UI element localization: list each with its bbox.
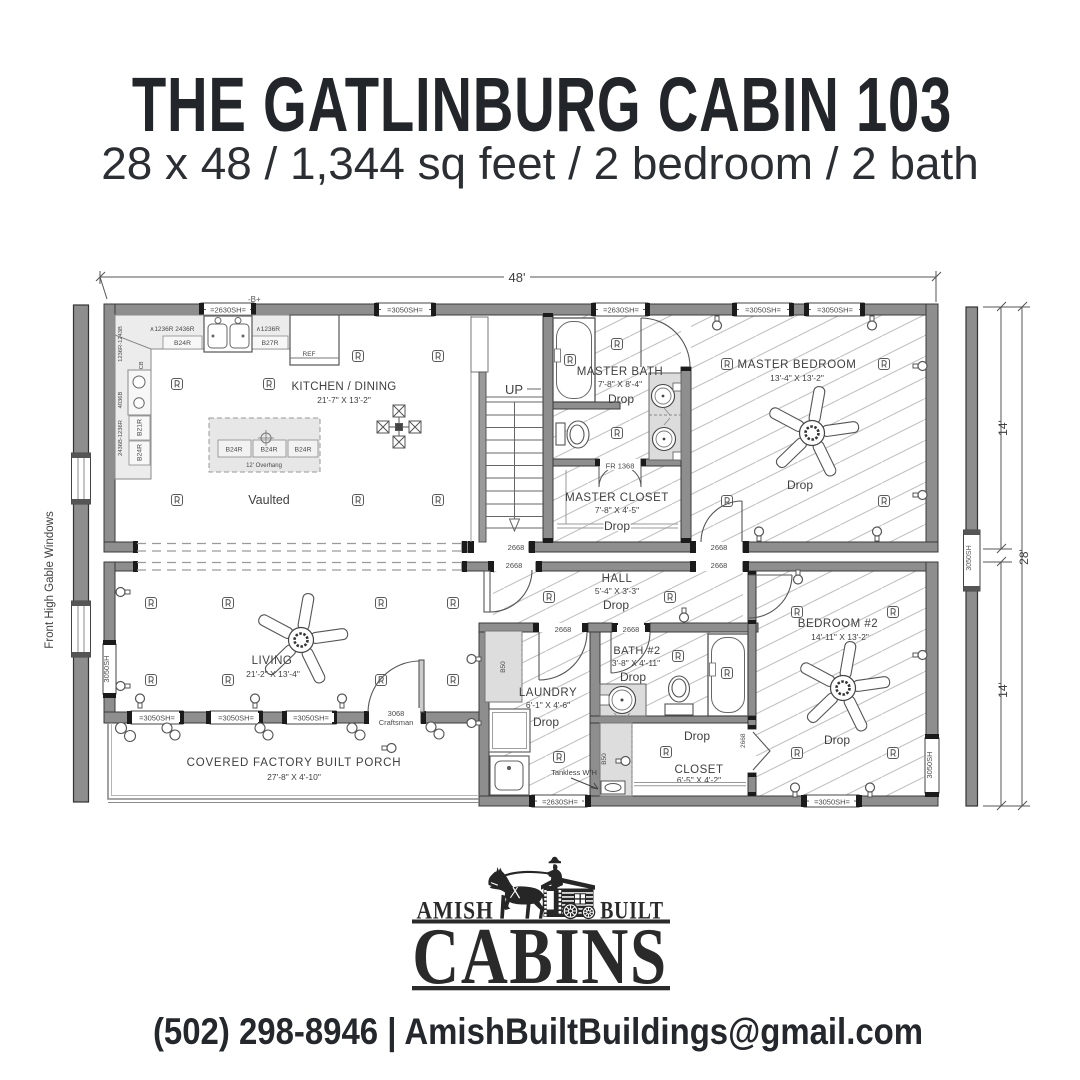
- svg-text:=2630SH=: =2630SH=: [603, 306, 639, 315]
- svg-text:Drop: Drop: [824, 733, 850, 747]
- svg-text:2668: 2668: [555, 625, 572, 634]
- svg-text:48': 48': [509, 270, 526, 285]
- svg-text:B24R: B24R: [225, 447, 242, 454]
- svg-text:B24R: B24R: [137, 444, 144, 461]
- svg-text:14'-11" X 13'-2": 14'-11" X 13'-2": [811, 632, 869, 642]
- svg-text:Front High Gable Windows: Front High Gable Windows: [44, 511, 56, 649]
- svg-text:2668: 2668: [508, 543, 525, 552]
- svg-text:Drop: Drop: [603, 598, 629, 612]
- svg-text:MASTER BEDROOM: MASTER BEDROOM: [738, 359, 857, 371]
- svg-text:=3050SH=: =3050SH=: [745, 306, 781, 315]
- svg-text:COVERED FACTORY BUILT PORCH: COVERED FACTORY BUILT PORCH: [187, 757, 402, 769]
- svg-text:7'-8" X 8'-4": 7'-8" X 8'-4": [598, 379, 642, 389]
- svg-text:28': 28': [1017, 549, 1031, 565]
- svg-text:-B+: -B+: [248, 295, 261, 304]
- svg-text:7'-8" X 4'-5": 7'-8" X 4'-5": [595, 505, 639, 515]
- svg-text:B50: B50: [500, 661, 507, 673]
- svg-text:2436B-1236R: 2436B-1236R: [118, 420, 124, 456]
- svg-text:6'-1" X 4'-6": 6'-1" X 4'-6": [526, 700, 570, 710]
- svg-text:2668: 2668: [740, 733, 747, 748]
- svg-text:4036B: 4036B: [118, 391, 124, 408]
- svg-text:BEDROOM #2: BEDROOM #2: [798, 618, 878, 630]
- svg-text:=3050SH=: =3050SH=: [293, 714, 329, 723]
- svg-text:27'-8" X 4'-10": 27'-8" X 4'-10": [267, 772, 321, 782]
- svg-text:3'-8" X 4'-11": 3'-8" X 4'-11": [612, 658, 660, 668]
- svg-text:21'-2" X 13'-4": 21'-2" X 13'-4": [246, 669, 300, 679]
- svg-text:KITCHEN / DINING: KITCHEN / DINING: [291, 381, 396, 393]
- svg-text:3068: 3068: [388, 709, 405, 718]
- svg-text:=3050SH=: =3050SH=: [817, 306, 853, 315]
- svg-text:=3050SH=: =3050SH=: [139, 714, 175, 723]
- svg-text:FR 1368: FR 1368: [606, 462, 635, 471]
- svg-text:UP: UP: [505, 382, 523, 397]
- svg-text:BATH #2: BATH #2: [613, 645, 660, 657]
- svg-text:3050SH: 3050SH: [966, 545, 973, 570]
- svg-text:=3050SH=: =3050SH=: [218, 714, 254, 723]
- svg-text:B50: B50: [601, 753, 608, 765]
- svg-text:3050SH: 3050SH: [102, 655, 111, 682]
- svg-text:28 x 48 / 1,344 sq feet / 2 be: 28 x 48 / 1,344 sq feet / 2 bedroom / 2 …: [101, 138, 979, 188]
- svg-text:B24R: B24R: [174, 340, 191, 347]
- svg-text:Drop: Drop: [620, 670, 646, 684]
- svg-text:12' Overhang: 12' Overhang: [246, 463, 282, 469]
- svg-text:Drop: Drop: [787, 478, 813, 492]
- svg-text:6'-5" X 4'-2": 6'-5" X 4'-2": [677, 775, 721, 785]
- svg-text:=2630SH=: =2630SH=: [542, 798, 578, 807]
- svg-text:LAUNDRY: LAUNDRY: [519, 687, 577, 699]
- svg-text:=2630SH=: =2630SH=: [210, 306, 246, 315]
- svg-text:1236R-1243B: 1236R-1243B: [118, 326, 124, 362]
- svg-text:=3050SH=: =3050SH=: [814, 798, 850, 807]
- svg-text:Vaulted: Vaulted: [248, 493, 290, 507]
- svg-text:5'-4" X 3'-3": 5'-4" X 3'-3": [595, 586, 639, 596]
- svg-text:Tankless W/H: Tankless W/H: [551, 768, 597, 777]
- svg-text:∧1236R: ∧1236R: [256, 326, 280, 333]
- svg-text:13'-4" X 13'-2": 13'-4" X 13'-2": [770, 373, 824, 383]
- svg-text:14': 14': [996, 420, 1010, 436]
- svg-text:HALL: HALL: [602, 573, 633, 585]
- svg-text:Drop: Drop: [608, 392, 634, 406]
- svg-text:3050SH: 3050SH: [925, 751, 934, 778]
- svg-text:B21R: B21R: [137, 419, 144, 436]
- svg-text:Craftsman: Craftsman: [379, 718, 414, 727]
- svg-text:2668: 2668: [711, 543, 728, 552]
- svg-text:∧1236R 2436R: ∧1236R 2436R: [150, 326, 195, 333]
- svg-text:LIVING: LIVING: [252, 655, 293, 667]
- svg-text:B24R: B24R: [294, 447, 311, 454]
- svg-text:MASTER BATH: MASTER BATH: [577, 366, 663, 378]
- svg-text:21'-7" X 13'-2": 21'-7" X 13'-2": [317, 395, 371, 405]
- svg-text:(502) 298-8946 | AmishBuiltBui: (502) 298-8946 | AmishBuiltBuildings@gma…: [153, 1011, 923, 1052]
- svg-text:REF: REF: [303, 351, 316, 358]
- svg-text:Drop: Drop: [604, 519, 630, 533]
- svg-text:B27R: B27R: [261, 340, 278, 347]
- svg-text:Drop: Drop: [533, 715, 559, 729]
- svg-text:Drop: Drop: [684, 729, 710, 743]
- svg-text:=3050SH=: =3050SH=: [387, 306, 423, 315]
- svg-text:2668: 2668: [506, 561, 523, 570]
- svg-text:2668: 2668: [623, 625, 640, 634]
- svg-text:MASTER CLOSET: MASTER CLOSET: [565, 492, 669, 504]
- svg-text:B24R: B24R: [260, 447, 277, 454]
- svg-text:14': 14': [996, 682, 1010, 698]
- svg-text:2668: 2668: [711, 561, 728, 570]
- svg-text:THE GATLINBURG CABIN 103: THE GATLINBURG CABIN 103: [132, 62, 952, 148]
